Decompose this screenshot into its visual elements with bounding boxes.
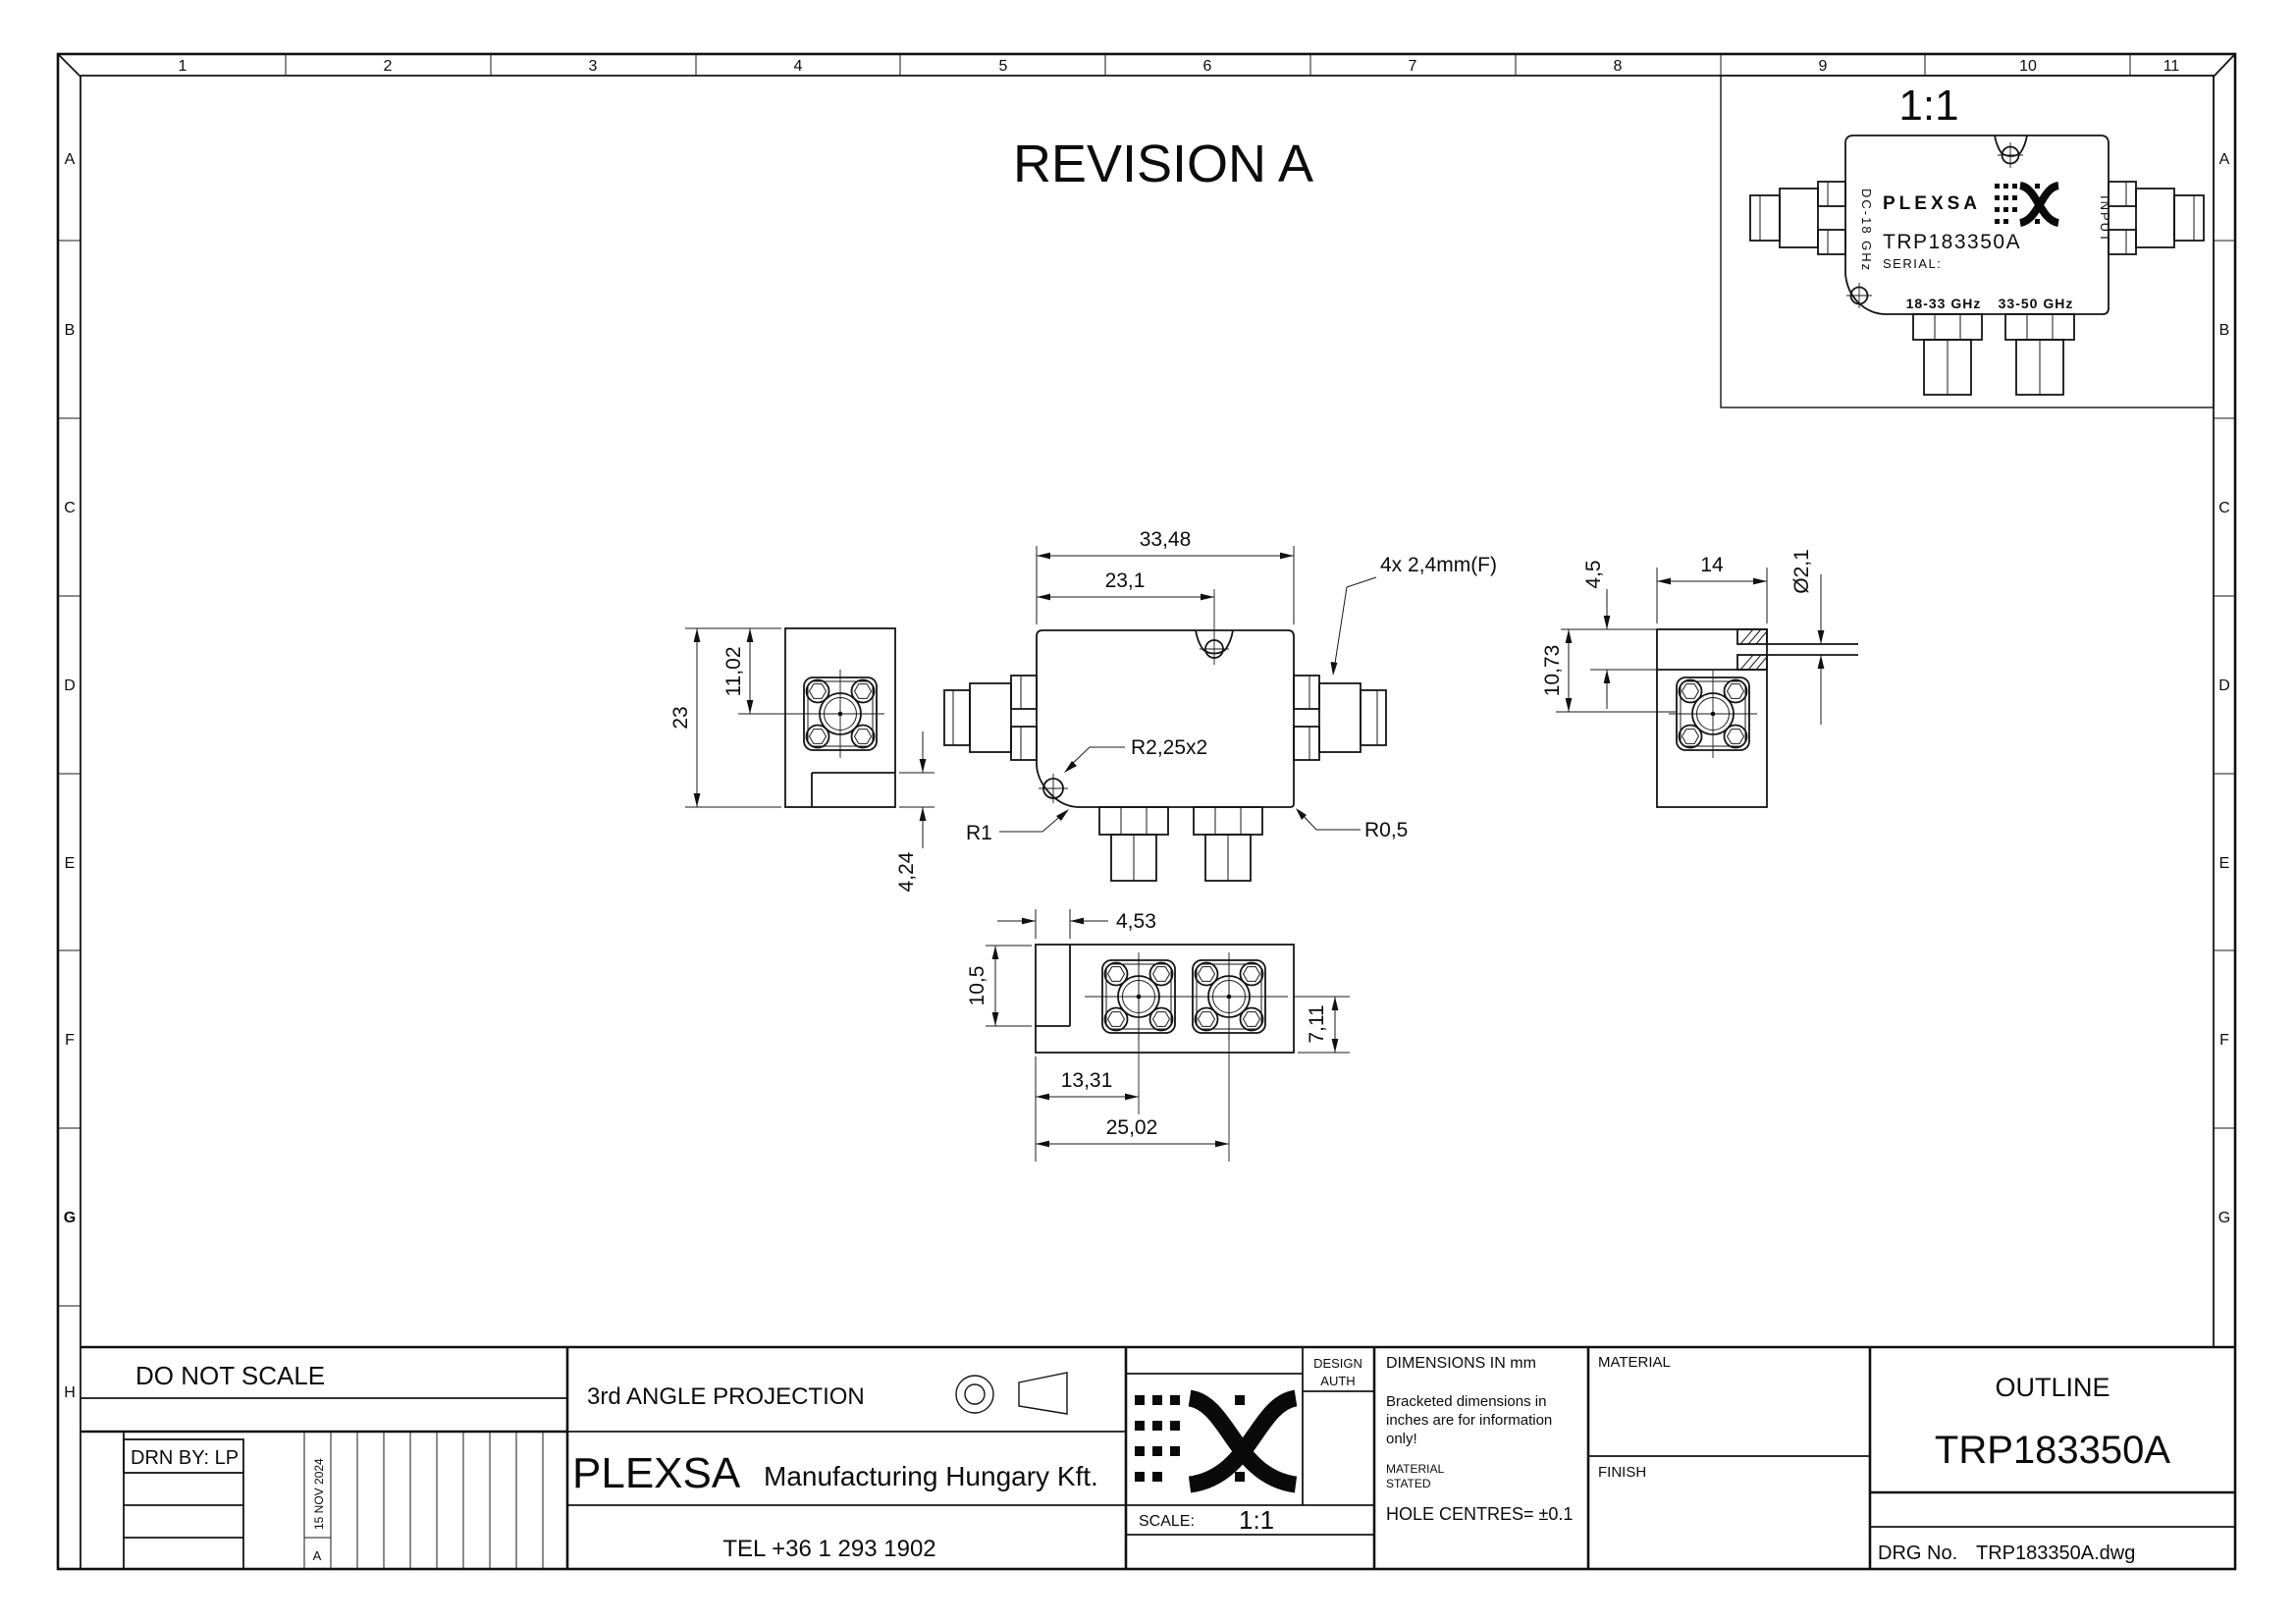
device-serial-label: SERIAL: (1883, 256, 1942, 271)
material-label: MATERIAL (1598, 1354, 1671, 1371)
device-right-connector (2109, 182, 2204, 254)
auth-label: AUTH (1320, 1374, 1355, 1388)
col-label-2: 2 (384, 58, 393, 75)
dim-notch-width: 4,53 (1116, 910, 1156, 933)
col-label-9: 9 (1819, 58, 1828, 75)
device-body-outline (1845, 135, 2109, 314)
dim-side-port-offset: 11,02 (722, 647, 745, 697)
row-label-left-E: E (65, 855, 76, 872)
drg-value: TRP183350A.dwg (1976, 1543, 2135, 1564)
front-right-connector (1294, 676, 1386, 760)
dim-notch-depth: 10,5 (966, 966, 988, 1006)
row-label-left-C: C (64, 500, 76, 516)
design-label: DESIGN (1313, 1356, 1362, 1371)
device-top-ear (1995, 135, 2027, 156)
company-tel: TEL +36 1 293 1902 (722, 1536, 935, 1562)
row-label-right-B: B (2219, 322, 2230, 339)
left-side-view: 23 11,02 4,24 (669, 628, 934, 892)
note-holes: HOLE CENTRES= ±0.1 (1386, 1504, 1573, 1524)
device-left-port-label: DC-18 GHz (1859, 189, 1874, 272)
row-ticks (58, 241, 2235, 1306)
col-label-11: 11 (2163, 58, 2180, 75)
front-body-outline (1037, 630, 1294, 807)
dim-side-height: 23 (669, 706, 692, 729)
dim-port2-distance: 25,02 (1106, 1116, 1158, 1139)
col-label-6: 6 (1203, 58, 1212, 75)
doc-title: OUTLINE (1995, 1373, 2109, 1402)
row-label-right-D: D (2218, 677, 2230, 694)
front-dimensions: 33,48 23,1 4x 2,4mm(F) R2,25x2 R1 R0,5 (966, 528, 1497, 844)
bottom-view-flange-1 (1095, 952, 1183, 1041)
left-view-flange (796, 670, 884, 758)
dim-hole-offset: 23,1 (1105, 569, 1146, 592)
company-name: PLEXSA (572, 1449, 741, 1497)
device-input-label: INPUT (2098, 195, 2112, 244)
part-number: TRP183350A (1935, 1429, 2170, 1472)
right-side-view: 14 4,5 10,73 Ø2,1 (1541, 549, 1858, 807)
bottom-view-dimensions: 4,53 10,5 7,11 13,31 25,02 (966, 909, 1350, 1162)
notes-block: DIMENSIONS IN mm Bracketed dimensions in… (1386, 1355, 1573, 1524)
dim-front-width: 33,48 (1140, 528, 1192, 551)
column-labels: 1 2 3 4 5 6 7 8 9 10 11 (179, 58, 2180, 75)
col-label-8: 8 (1614, 58, 1623, 75)
row-label-left-F: F (65, 1032, 75, 1049)
row-labels-left: A B C D E F G H (64, 151, 76, 1401)
scale-view-label: 1:1 (1898, 81, 1958, 130)
device-brand-logo-icon (1995, 184, 2058, 224)
device-left-connector (1750, 182, 1845, 254)
hatch-lines (1740, 629, 1767, 670)
row-label-right-C: C (2218, 500, 2230, 516)
corner-bevel-topleft (59, 55, 80, 77)
front-view: 33,48 23,1 4x 2,4mm(F) R2,25x2 R1 R0,5 (944, 528, 1497, 881)
dim-bottom-port-offset: 7,11 (1306, 1004, 1328, 1043)
scale-label: SCALE: (1139, 1513, 1195, 1530)
col-label-7: 7 (1409, 58, 1417, 75)
note-material-2: STATED (1386, 1477, 1431, 1490)
dim-side-notch: 4,24 (895, 851, 918, 892)
finish-label: FINISH (1598, 1464, 1646, 1481)
row-label-right-G: G (2218, 1210, 2230, 1226)
dim-side-width: 14 (1700, 554, 1724, 576)
device-band-high: 33-50 GHz (1999, 296, 2074, 311)
note-bracket-1: Bracketed dimensions in (1386, 1393, 1546, 1410)
row-label-right-F: F (2219, 1032, 2229, 1049)
col-label-10: 10 (2019, 58, 2037, 75)
dim-pin-diameter: Ø2,1 (1790, 549, 1813, 594)
corner-bevel-topright (2214, 55, 2234, 77)
projection-symbol-icon (956, 1373, 1067, 1414)
device-bottom-connectors (1913, 314, 2074, 395)
revision-title: REVISION A (1013, 135, 1313, 193)
notes-title: DIMENSIONS IN mm (1386, 1355, 1536, 1372)
note-bracket-3: only! (1386, 1431, 1417, 1447)
company-logo-icon (1135, 1395, 1296, 1485)
col-label-4: 4 (794, 58, 803, 75)
drawing-sheet: 1 2 3 4 5 6 7 8 9 10 11 A B C D E F G H … (0, 0, 2296, 1624)
dim-port1-distance: 13,31 (1061, 1069, 1113, 1092)
drg-label: DRG No. (1878, 1543, 1957, 1564)
revision-letter: A (313, 1548, 322, 1563)
bottom-view-flange-2 (1185, 952, 1273, 1041)
right-view-outline (1657, 629, 1767, 807)
row-label-left-G: G (64, 1210, 76, 1226)
do-not-scale-label: DO NOT SCALE (135, 1361, 325, 1390)
row-label-right-E: E (2219, 855, 2230, 872)
dim-radius-r1: R1 (966, 822, 992, 844)
row-label-right-A: A (2219, 151, 2230, 168)
row-label-left-H: H (64, 1384, 76, 1401)
right-view-flange (1669, 670, 1757, 758)
col-label-3: 3 (589, 58, 598, 75)
dim-radius-r05: R0,5 (1364, 819, 1408, 841)
bottom-view: 4,53 10,5 7,11 13,31 25,02 (966, 909, 1350, 1162)
dim-slot-depth: 4,5 (1582, 560, 1605, 588)
row-labels-right: A B C D E F G (2218, 151, 2230, 1226)
row-label-left-A: A (65, 151, 76, 168)
row-label-left-D: D (64, 677, 76, 694)
dim-side-offset: 10,73 (1541, 645, 1564, 697)
device-brand: PLEXSA (1883, 193, 1981, 214)
front-left-connector (944, 676, 1037, 760)
note-material-1: MATERIAL (1386, 1462, 1444, 1476)
col-label-1: 1 (179, 58, 187, 75)
dim-tab-radius: R2,25x2 (1131, 736, 1207, 759)
device-model: TRP183350A (1883, 231, 2021, 253)
projection-label: 3rd ANGLE PROJECTION (587, 1383, 865, 1410)
dim-connector-note: 4x 2,4mm(F) (1380, 554, 1497, 576)
device-band-low: 18-33 GHz (1906, 296, 1982, 311)
front-bottom-connectors (1099, 807, 1262, 881)
row-label-left-B: B (65, 322, 76, 339)
scale-1-1-view: 1:1 (1721, 76, 2214, 407)
revision-table: DRN BY: LP 15 NOV 2024 A (124, 1432, 543, 1569)
drn-by-label: DRN BY: LP (131, 1447, 239, 1469)
col-label-5: 5 (999, 58, 1008, 75)
title-block: DRN BY: LP 15 NOV 2024 A DO NOT SCALE 3r… (80, 1347, 2235, 1569)
company-suffix: Manufacturing Hungary Kft. (764, 1461, 1098, 1491)
note-bracket-2: inches are for information (1386, 1412, 1552, 1429)
scale-value: 1:1 (1239, 1505, 1274, 1535)
revision-date: 15 NOV 2024 (312, 1458, 326, 1530)
